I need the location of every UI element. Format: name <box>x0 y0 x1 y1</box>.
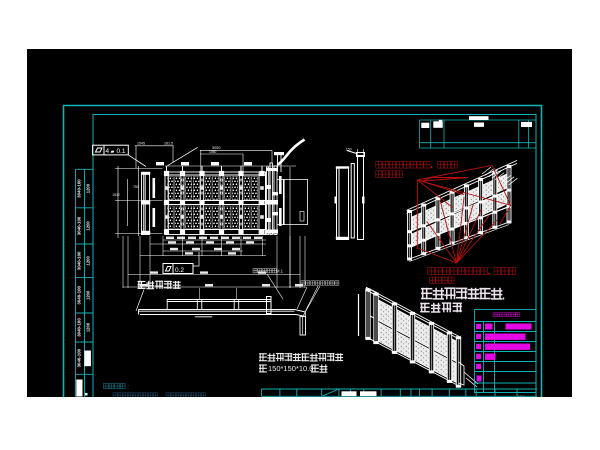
svg-text::: : <box>128 385 129 391</box>
svg-text:4: 4 <box>106 148 110 155</box>
svg-text:3040-100: 3040-100 <box>77 348 82 367</box>
svg-text:▰: ▰ <box>111 149 115 155</box>
svg-text:150*150*10.0: 150*150*10.0 <box>268 364 313 373</box>
svg-text:3040-100: 3040-100 <box>77 179 82 198</box>
svg-text:3040-100: 3040-100 <box>77 216 82 235</box>
svg-text:0.2: 0.2 <box>175 267 184 274</box>
svg-text:1200: 1200 <box>86 183 91 193</box>
svg-text:3040-100: 3040-100 <box>77 251 82 270</box>
svg-text:0.1: 0.1 <box>117 148 126 155</box>
svg-text:150: 150 <box>346 147 352 151</box>
svg-text:1200: 1200 <box>86 255 91 265</box>
svg-text:3040-100: 3040-100 <box>77 285 82 304</box>
svg-text:1200: 1200 <box>86 322 91 332</box>
svg-text:161.5: 161.5 <box>164 142 173 146</box>
svg-text:1545: 1545 <box>137 142 145 146</box>
svg-text:1050: 1050 <box>209 150 217 154</box>
svg-text:1200: 1200 <box>86 290 91 300</box>
svg-text:1532: 1532 <box>112 193 120 197</box>
svg-text:M.1: M.1 <box>276 269 284 274</box>
svg-text:750: 750 <box>133 185 139 189</box>
svg-text:3040-100: 3040-100 <box>77 318 82 337</box>
svg-text:1200: 1200 <box>86 221 91 231</box>
